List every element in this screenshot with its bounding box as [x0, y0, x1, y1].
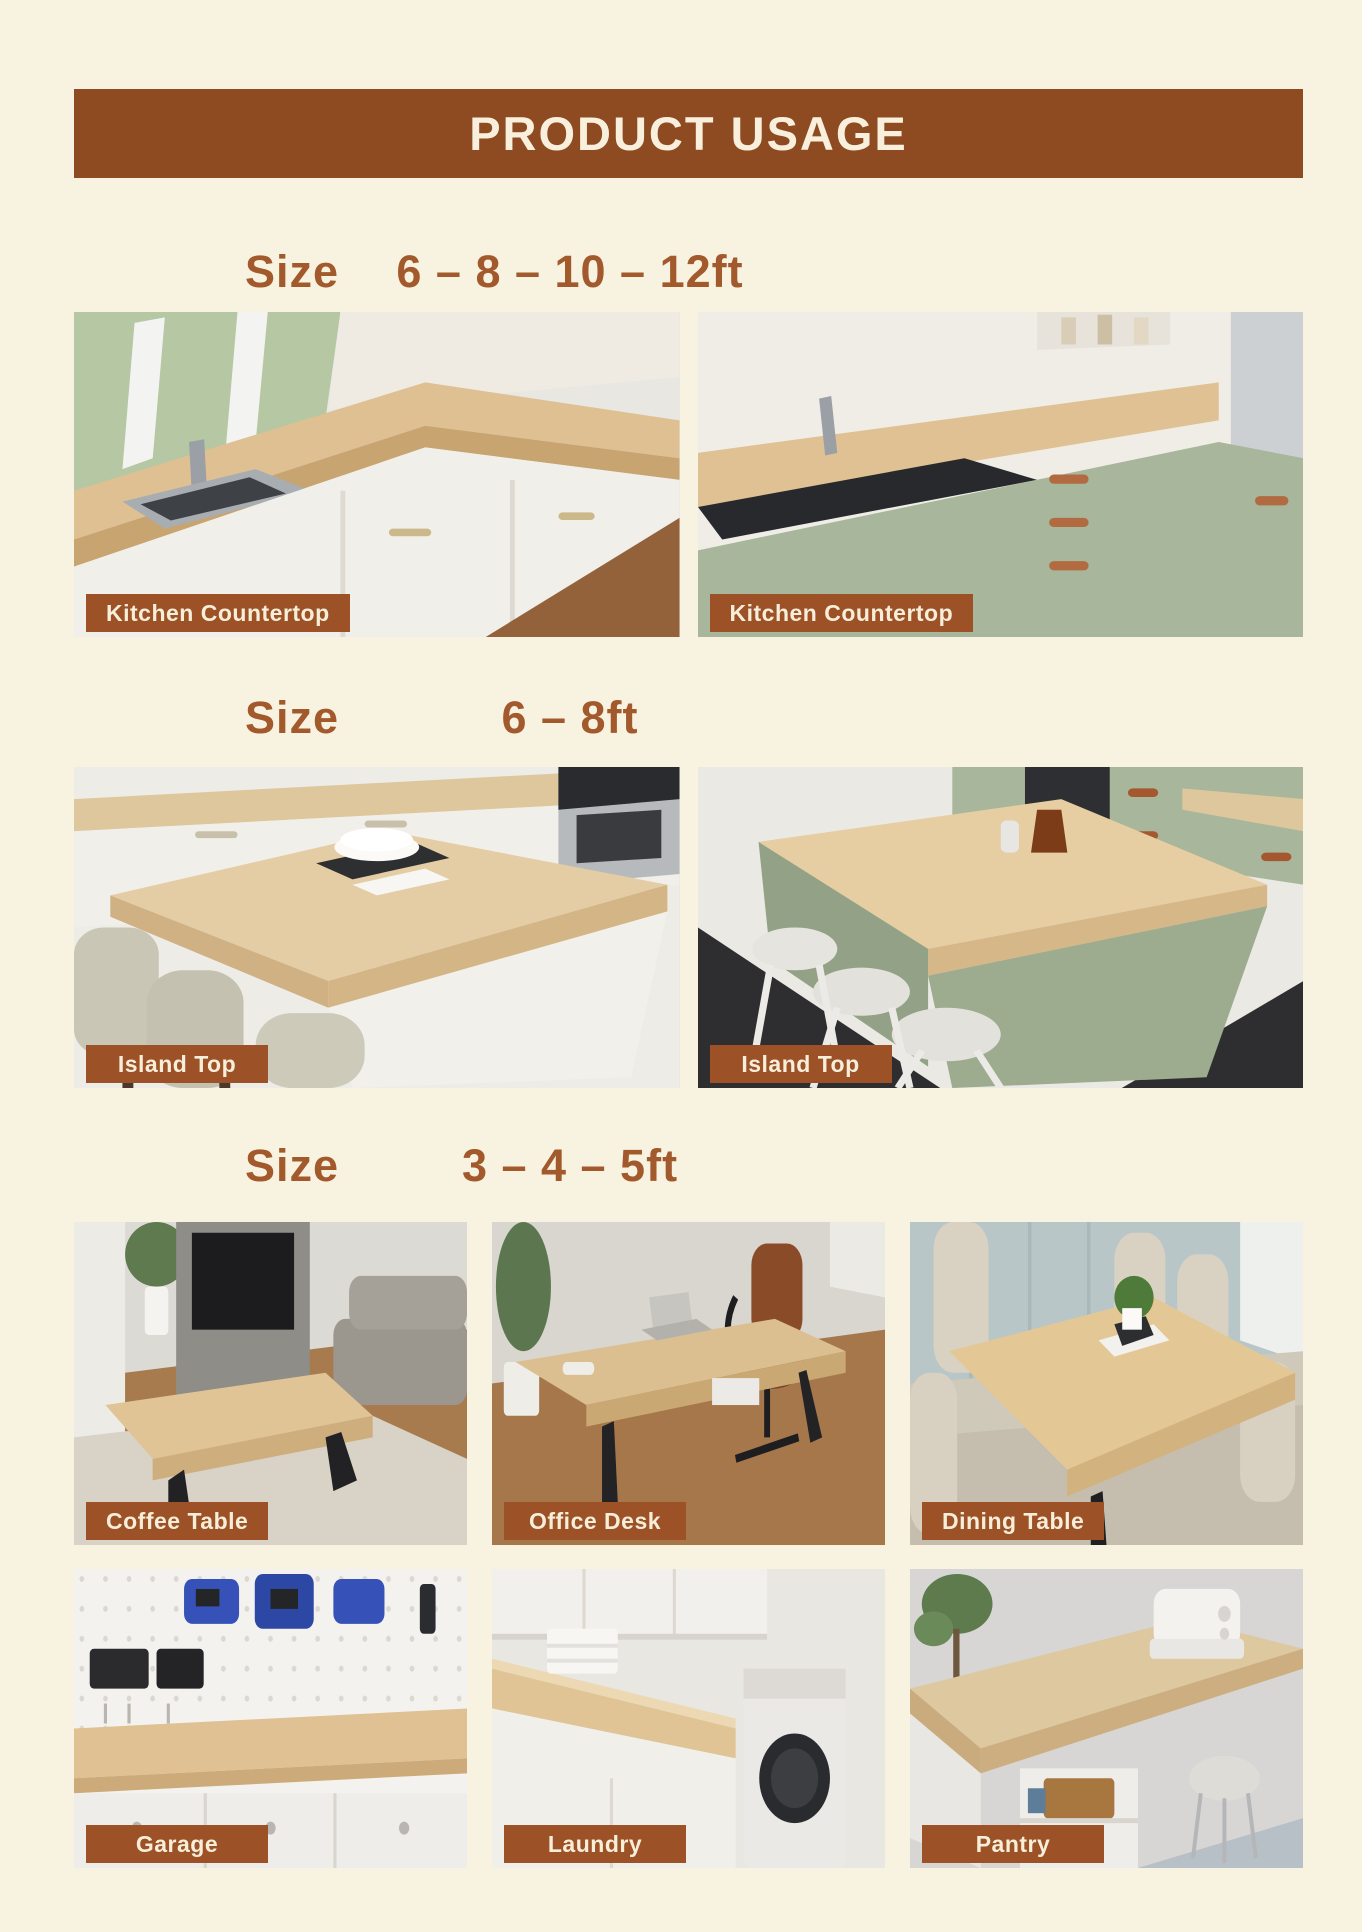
usage-tile-kitchen-countertop-1: Kitchen Countertop: [74, 312, 680, 637]
size-label-2: Size: [245, 692, 339, 743]
usage-tile-office-desk: Office Desk: [492, 1222, 885, 1545]
usage-tile-island-top-1: Island Top: [74, 767, 680, 1088]
kitchen-countertop-photo-1: [74, 312, 680, 637]
usage-label-badge: Island Top: [86, 1045, 268, 1083]
page-title: PRODUCT USAGE: [469, 106, 908, 161]
usage-row-utility: Garage Laundry: [74, 1569, 1303, 1868]
usage-row-tables: Coffee Table Off: [74, 1222, 1303, 1545]
size-value-3: 3 – 4 – 5ft: [462, 1138, 678, 1194]
size-heading-1: Size 6 – 8 – 10 – 12ft: [245, 244, 905, 300]
usage-label-badge: Kitchen Countertop: [710, 594, 974, 632]
usage-tile-island-top-2: Island Top: [698, 767, 1304, 1088]
dining-table-photo: [910, 1222, 1303, 1545]
size-heading-3: Size 3 – 4 – 5ft: [245, 1138, 905, 1194]
usage-row-kitchen: Kitchen Countertop Kitchen Countertop: [74, 312, 1303, 637]
usage-tile-garage: Garage: [74, 1569, 467, 1868]
usage-label-badge: Office Desk: [504, 1502, 686, 1540]
usage-label-badge: Laundry: [504, 1825, 686, 1863]
usage-row-island: Island Top: [74, 767, 1303, 1088]
usage-label-badge: Dining Table: [922, 1502, 1104, 1540]
usage-tile-pantry: Pantry: [910, 1569, 1303, 1868]
usage-tile-kitchen-countertop-2: Kitchen Countertop: [698, 312, 1304, 637]
size-value-1: 6 – 8 – 10 – 12ft: [396, 244, 743, 300]
size-heading-2: Size 6 – 8ft: [245, 690, 905, 746]
usage-label-badge: Garage: [86, 1825, 268, 1863]
size-label-3: Size: [245, 1140, 339, 1191]
island-top-photo-2: [698, 767, 1304, 1088]
product-usage-page: PRODUCT USAGE Size 6 – 8 – 10 – 12ft: [0, 0, 1362, 1932]
size-label-1: Size: [245, 246, 339, 297]
pantry-photo: [910, 1569, 1303, 1868]
island-top-photo-1: [74, 767, 680, 1088]
kitchen-countertop-photo-2: [698, 312, 1304, 637]
usage-label-badge: Coffee Table: [86, 1502, 268, 1540]
usage-tile-laundry: Laundry: [492, 1569, 885, 1868]
coffee-table-photo: [74, 1222, 467, 1545]
usage-label-badge: Pantry: [922, 1825, 1104, 1863]
usage-tile-coffee-table: Coffee Table: [74, 1222, 467, 1545]
header-banner: PRODUCT USAGE: [74, 89, 1303, 178]
usage-label-badge: Kitchen Countertop: [86, 594, 350, 632]
laundry-photo: [492, 1569, 885, 1868]
usage-tile-dining-table: Dining Table: [910, 1222, 1303, 1545]
usage-label-badge: Island Top: [710, 1045, 892, 1083]
garage-photo: [74, 1569, 467, 1868]
size-value-2: 6 – 8ft: [501, 690, 638, 746]
office-desk-photo: [492, 1222, 885, 1545]
